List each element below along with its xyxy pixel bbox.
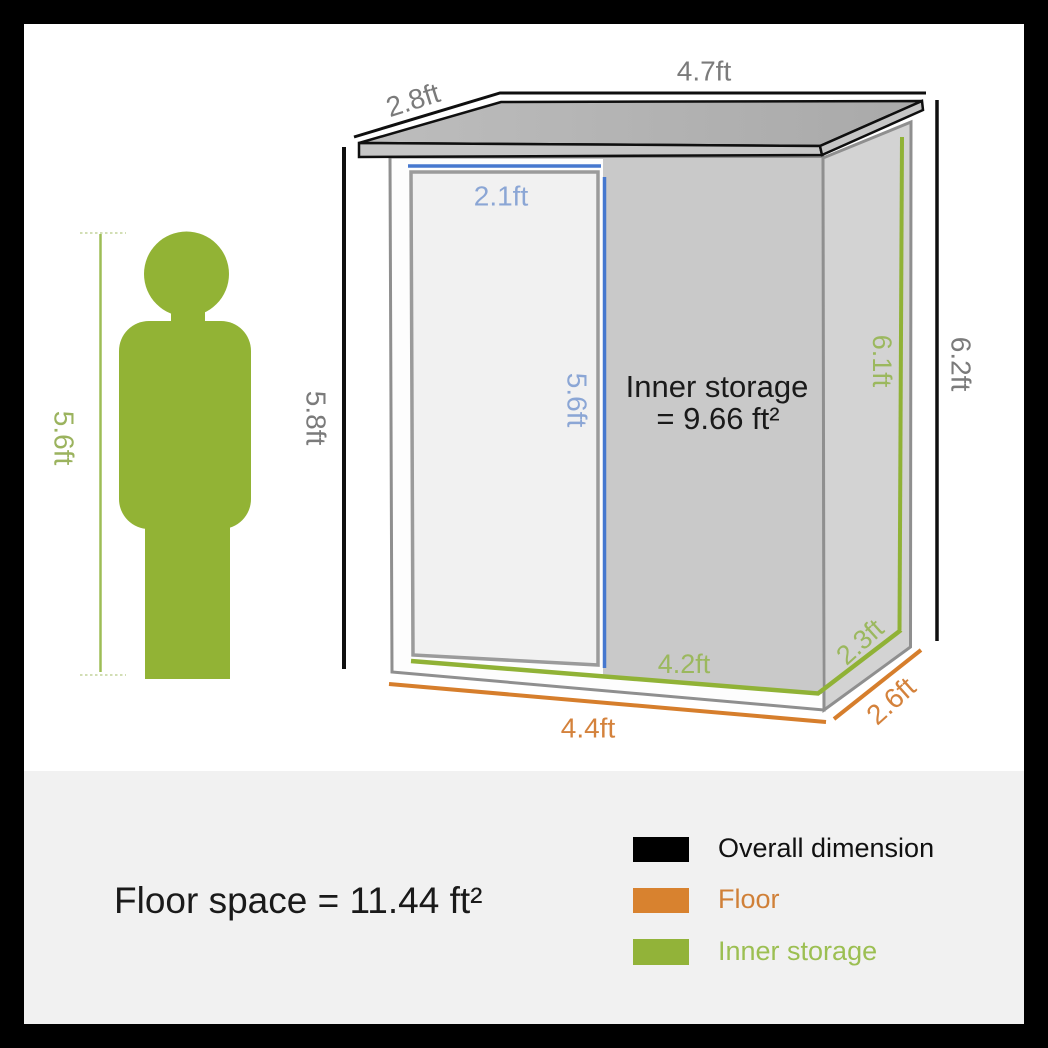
- svg-text:2.1ft: 2.1ft: [474, 181, 529, 212]
- svg-text:6.1ft: 6.1ft: [867, 335, 897, 388]
- svg-text:5.8ft: 5.8ft: [301, 391, 332, 446]
- svg-text:4.4ft: 4.4ft: [561, 713, 616, 744]
- svg-text:Overall dimension: Overall dimension: [718, 833, 934, 863]
- svg-text:4.7ft: 4.7ft: [677, 56, 732, 87]
- svg-text:Inner storage: Inner storage: [626, 369, 809, 404]
- svg-text:Inner storage: Inner storage: [718, 936, 877, 966]
- svg-text:Floor space = 11.44 ft²: Floor space = 11.44 ft²: [114, 880, 482, 921]
- svg-text:5.6ft: 5.6ft: [562, 373, 593, 428]
- svg-text:6.2ft: 6.2ft: [946, 337, 977, 392]
- svg-text:Floor: Floor: [718, 884, 780, 914]
- svg-text:= 9.66 ft²: = 9.66 ft²: [656, 401, 779, 436]
- svg-text:4.2ft: 4.2ft: [658, 649, 711, 679]
- svg-text:5.6ft: 5.6ft: [49, 411, 80, 466]
